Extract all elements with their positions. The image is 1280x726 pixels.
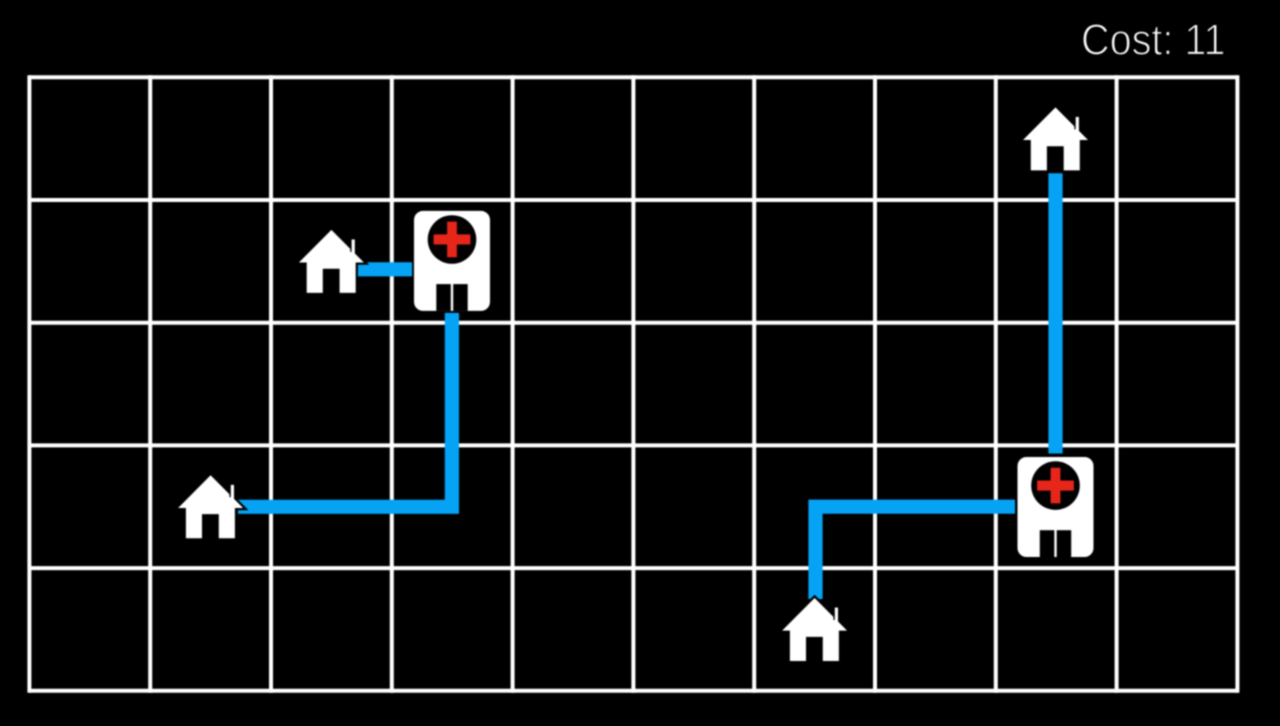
svg-text:Cost: 11: Cost: 11 bbox=[1081, 16, 1226, 65]
